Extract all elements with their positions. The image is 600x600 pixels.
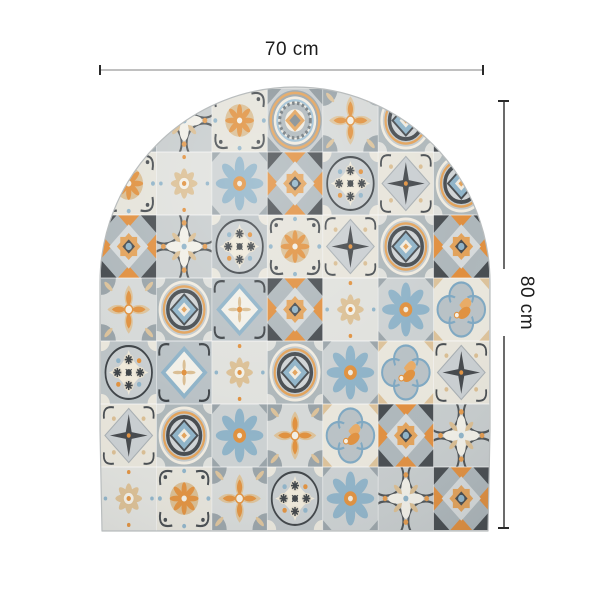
tile-blue-daisy xyxy=(101,89,156,152)
tile-panel xyxy=(0,0,600,600)
tile-panel-shading xyxy=(90,78,500,540)
tile-panel-clip-group xyxy=(90,78,500,541)
tile-kaleidoscope-star xyxy=(434,89,489,152)
product-dimension-diagram: 70 cm 80 cm xyxy=(0,0,600,600)
